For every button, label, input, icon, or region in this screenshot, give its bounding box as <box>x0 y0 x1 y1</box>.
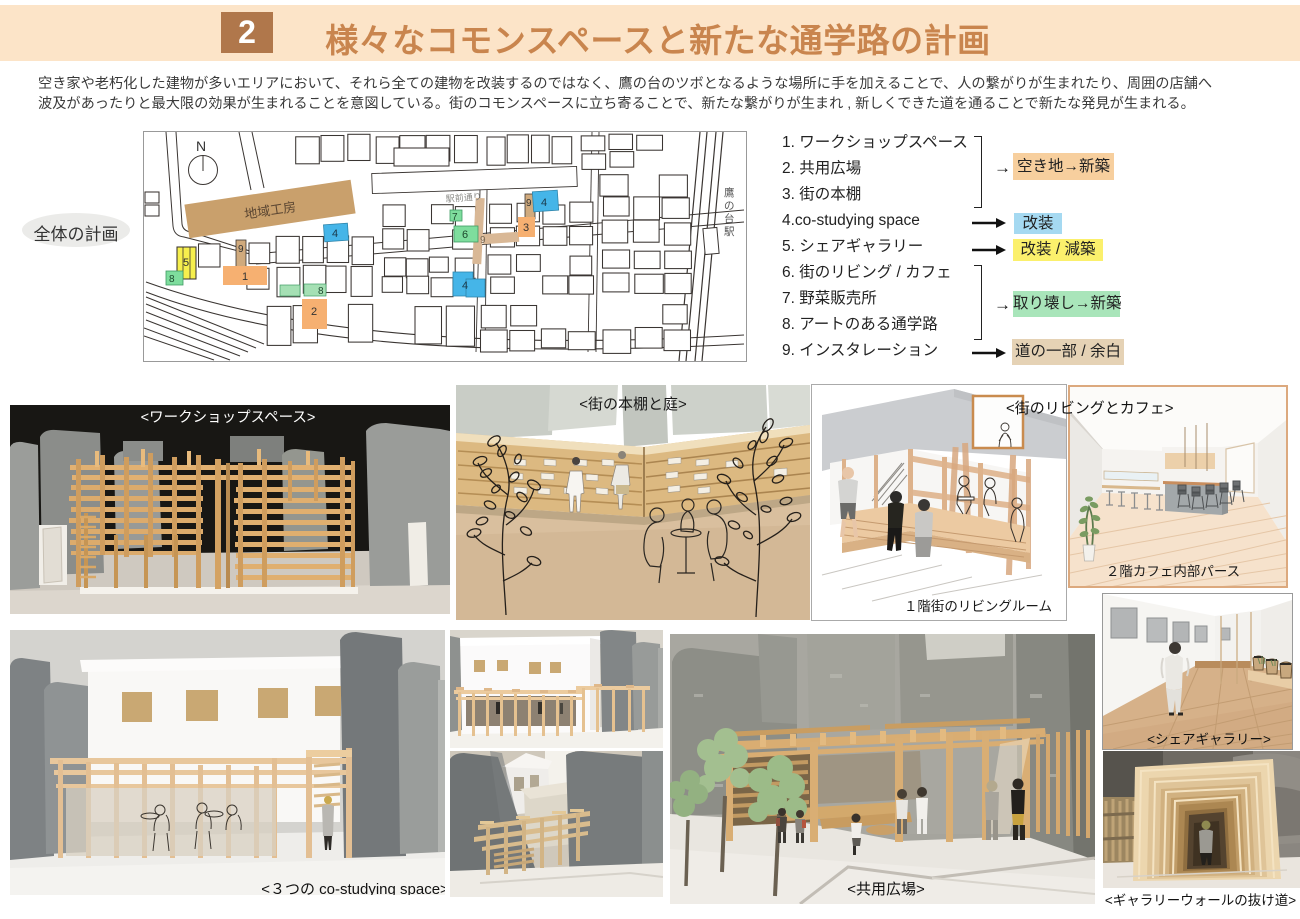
svg-text:7: 7 <box>452 212 458 223</box>
svg-text:4: 4 <box>332 228 338 240</box>
svg-text:駅: 駅 <box>724 226 735 238</box>
svg-text:２階カフェ内部パース: ２階カフェ内部パース <box>1106 564 1240 579</box>
svg-text:5: 5 <box>183 257 189 269</box>
svg-text:6: 6 <box>462 229 468 241</box>
svg-text:1: 1 <box>242 271 248 283</box>
svg-text:9: 9 <box>480 235 486 246</box>
svg-text:<シェアギャラリー>: <シェアギャラリー> <box>1147 732 1271 747</box>
svg-text:<街の本棚と庭>: <街の本棚と庭> <box>579 396 687 413</box>
svg-text:9: 9 <box>526 198 532 209</box>
svg-text:8: 8 <box>169 274 175 285</box>
svg-text:の: の <box>724 200 735 212</box>
svg-text:<ワークショップスペース>: <ワークショップスペース> <box>141 409 316 426</box>
svg-text:4: 4 <box>462 280 468 292</box>
svg-text:4: 4 <box>541 197 547 209</box>
svg-text:<共用広場>: <共用広場> <box>847 881 925 898</box>
svg-text:１階街のリビングルーム: １階街のリビングルーム <box>904 599 1052 614</box>
svg-text:N: N <box>196 138 206 154</box>
svg-text:台: 台 <box>724 212 735 225</box>
svg-text:鷹: 鷹 <box>724 186 735 199</box>
svg-text:3: 3 <box>523 222 529 234</box>
svg-text:2: 2 <box>311 306 317 318</box>
svg-text:8: 8 <box>318 286 324 297</box>
svg-text:9: 9 <box>238 244 244 255</box>
svg-text:<３つの co-studying space>: <３つの co-studying space> <box>261 881 445 895</box>
